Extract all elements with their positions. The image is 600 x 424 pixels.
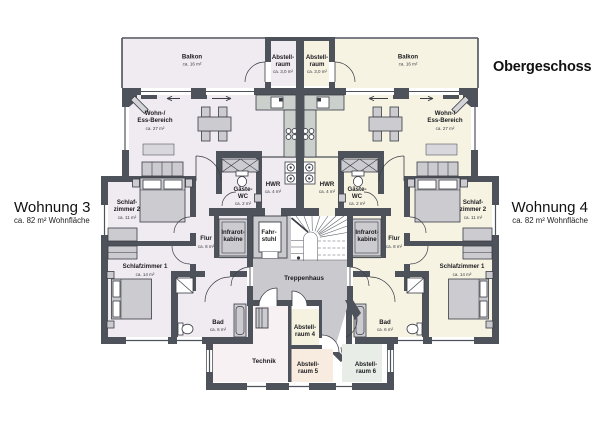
- svg-text:Schlafzimmer 1: Schlafzimmer 1: [440, 263, 485, 270]
- svg-text:Schlaf-: Schlaf-: [117, 199, 137, 206]
- svg-text:Balkon: Balkon: [398, 54, 419, 61]
- svg-text:ca. 6 m²: ca. 6 m²: [210, 327, 227, 332]
- svg-text:Infrarot-: Infrarot-: [221, 229, 244, 236]
- svg-text:raum 4: raum 4: [295, 331, 316, 338]
- svg-text:Flur: Flur: [200, 235, 212, 242]
- svg-text:zimmer 2: zimmer 2: [114, 206, 141, 213]
- svg-text:ca. 3,0 m²: ca. 3,0 m²: [273, 69, 294, 74]
- svg-text:Bad: Bad: [379, 319, 391, 326]
- svg-text:stuhl: stuhl: [262, 236, 277, 243]
- svg-text:ca. 11 m²: ca. 11 m²: [118, 215, 137, 220]
- svg-text:ca. 2 m²: ca. 2 m²: [349, 201, 366, 206]
- svg-text:ca. 27 m²: ca. 27 m²: [146, 126, 165, 131]
- svg-text:Wohn-/: Wohn-/: [435, 110, 456, 117]
- svg-text:ca. 6 m²: ca. 6 m²: [377, 327, 394, 332]
- svg-text:ca. 16 m²: ca. 16 m²: [183, 62, 202, 67]
- svg-text:Fahr-: Fahr-: [261, 229, 276, 236]
- svg-text:Flur: Flur: [388, 235, 400, 242]
- svg-text:ca. 14 m²: ca. 14 m²: [136, 272, 155, 277]
- svg-text:raum 5: raum 5: [298, 368, 319, 375]
- svg-text:raum: raum: [276, 61, 291, 68]
- svg-text:Abstell-: Abstell-: [306, 54, 328, 61]
- svg-text:Treppenhaus: Treppenhaus: [284, 275, 324, 282]
- svg-text:ca. 2 m²: ca. 2 m²: [235, 201, 252, 206]
- svg-text:Bad: Bad: [212, 319, 224, 326]
- svg-text:Wohn-/: Wohn-/: [145, 110, 166, 117]
- svg-text:HWR: HWR: [320, 181, 335, 188]
- svg-text:raum 6: raum 6: [356, 368, 377, 375]
- svg-text:raum: raum: [310, 61, 325, 68]
- svg-text:Obergeschoss: Obergeschoss: [493, 59, 591, 75]
- svg-text:ca. 3,0 m²: ca. 3,0 m²: [307, 69, 328, 74]
- svg-text:Ess-Bereich: Ess-Bereich: [427, 117, 463, 124]
- svg-text:Gäste-: Gäste-: [234, 186, 253, 193]
- svg-text:Abstell-: Abstell-: [272, 54, 294, 61]
- svg-text:ca. 4 m²: ca. 4 m²: [265, 189, 282, 194]
- svg-text:Ess-Bereich: Ess-Bereich: [137, 117, 173, 124]
- svg-text:Abstell-: Abstell-: [355, 361, 377, 368]
- svg-text:Technik: Technik: [252, 358, 276, 365]
- svg-text:ca. 14 m²: ca. 14 m²: [453, 272, 472, 277]
- svg-text:kabine: kabine: [357, 236, 377, 243]
- svg-text:WC: WC: [352, 193, 363, 200]
- svg-text:Gäste-: Gäste-: [348, 186, 367, 193]
- svg-text:Infrarot-: Infrarot-: [355, 229, 378, 236]
- svg-text:ca. 8 m²: ca. 8 m²: [386, 244, 403, 249]
- svg-text:ca. 27 m²: ca. 27 m²: [436, 126, 455, 131]
- svg-text:Schlaf-: Schlaf-: [463, 199, 483, 206]
- svg-text:kabine: kabine: [223, 236, 243, 243]
- svg-text:WC: WC: [238, 193, 249, 200]
- svg-text:HWR: HWR: [266, 181, 281, 188]
- svg-text:ca. 8 m²: ca. 8 m²: [198, 244, 215, 249]
- svg-text:ca. 82 m² Wohnfläche: ca. 82 m² Wohnfläche: [14, 216, 90, 225]
- svg-text:Wohnung 4: Wohnung 4: [512, 199, 588, 216]
- svg-text:ca. 4 m²: ca. 4 m²: [319, 189, 336, 194]
- svg-text:Schlafzimmer 1: Schlafzimmer 1: [123, 263, 168, 270]
- svg-text:Balkon: Balkon: [182, 54, 203, 61]
- svg-text:Wohnung 3: Wohnung 3: [14, 199, 90, 216]
- svg-text:ca. 82 m² Wohnfläche: ca. 82 m² Wohnfläche: [512, 216, 588, 225]
- svg-text:Abstell-: Abstell-: [297, 361, 319, 368]
- svg-text:zimmer 2: zimmer 2: [460, 206, 487, 213]
- svg-text:ca. 11 m²: ca. 11 m²: [464, 215, 483, 220]
- svg-text:Abstell-: Abstell-: [294, 324, 316, 331]
- svg-text:ca. 16 m²: ca. 16 m²: [399, 62, 418, 67]
